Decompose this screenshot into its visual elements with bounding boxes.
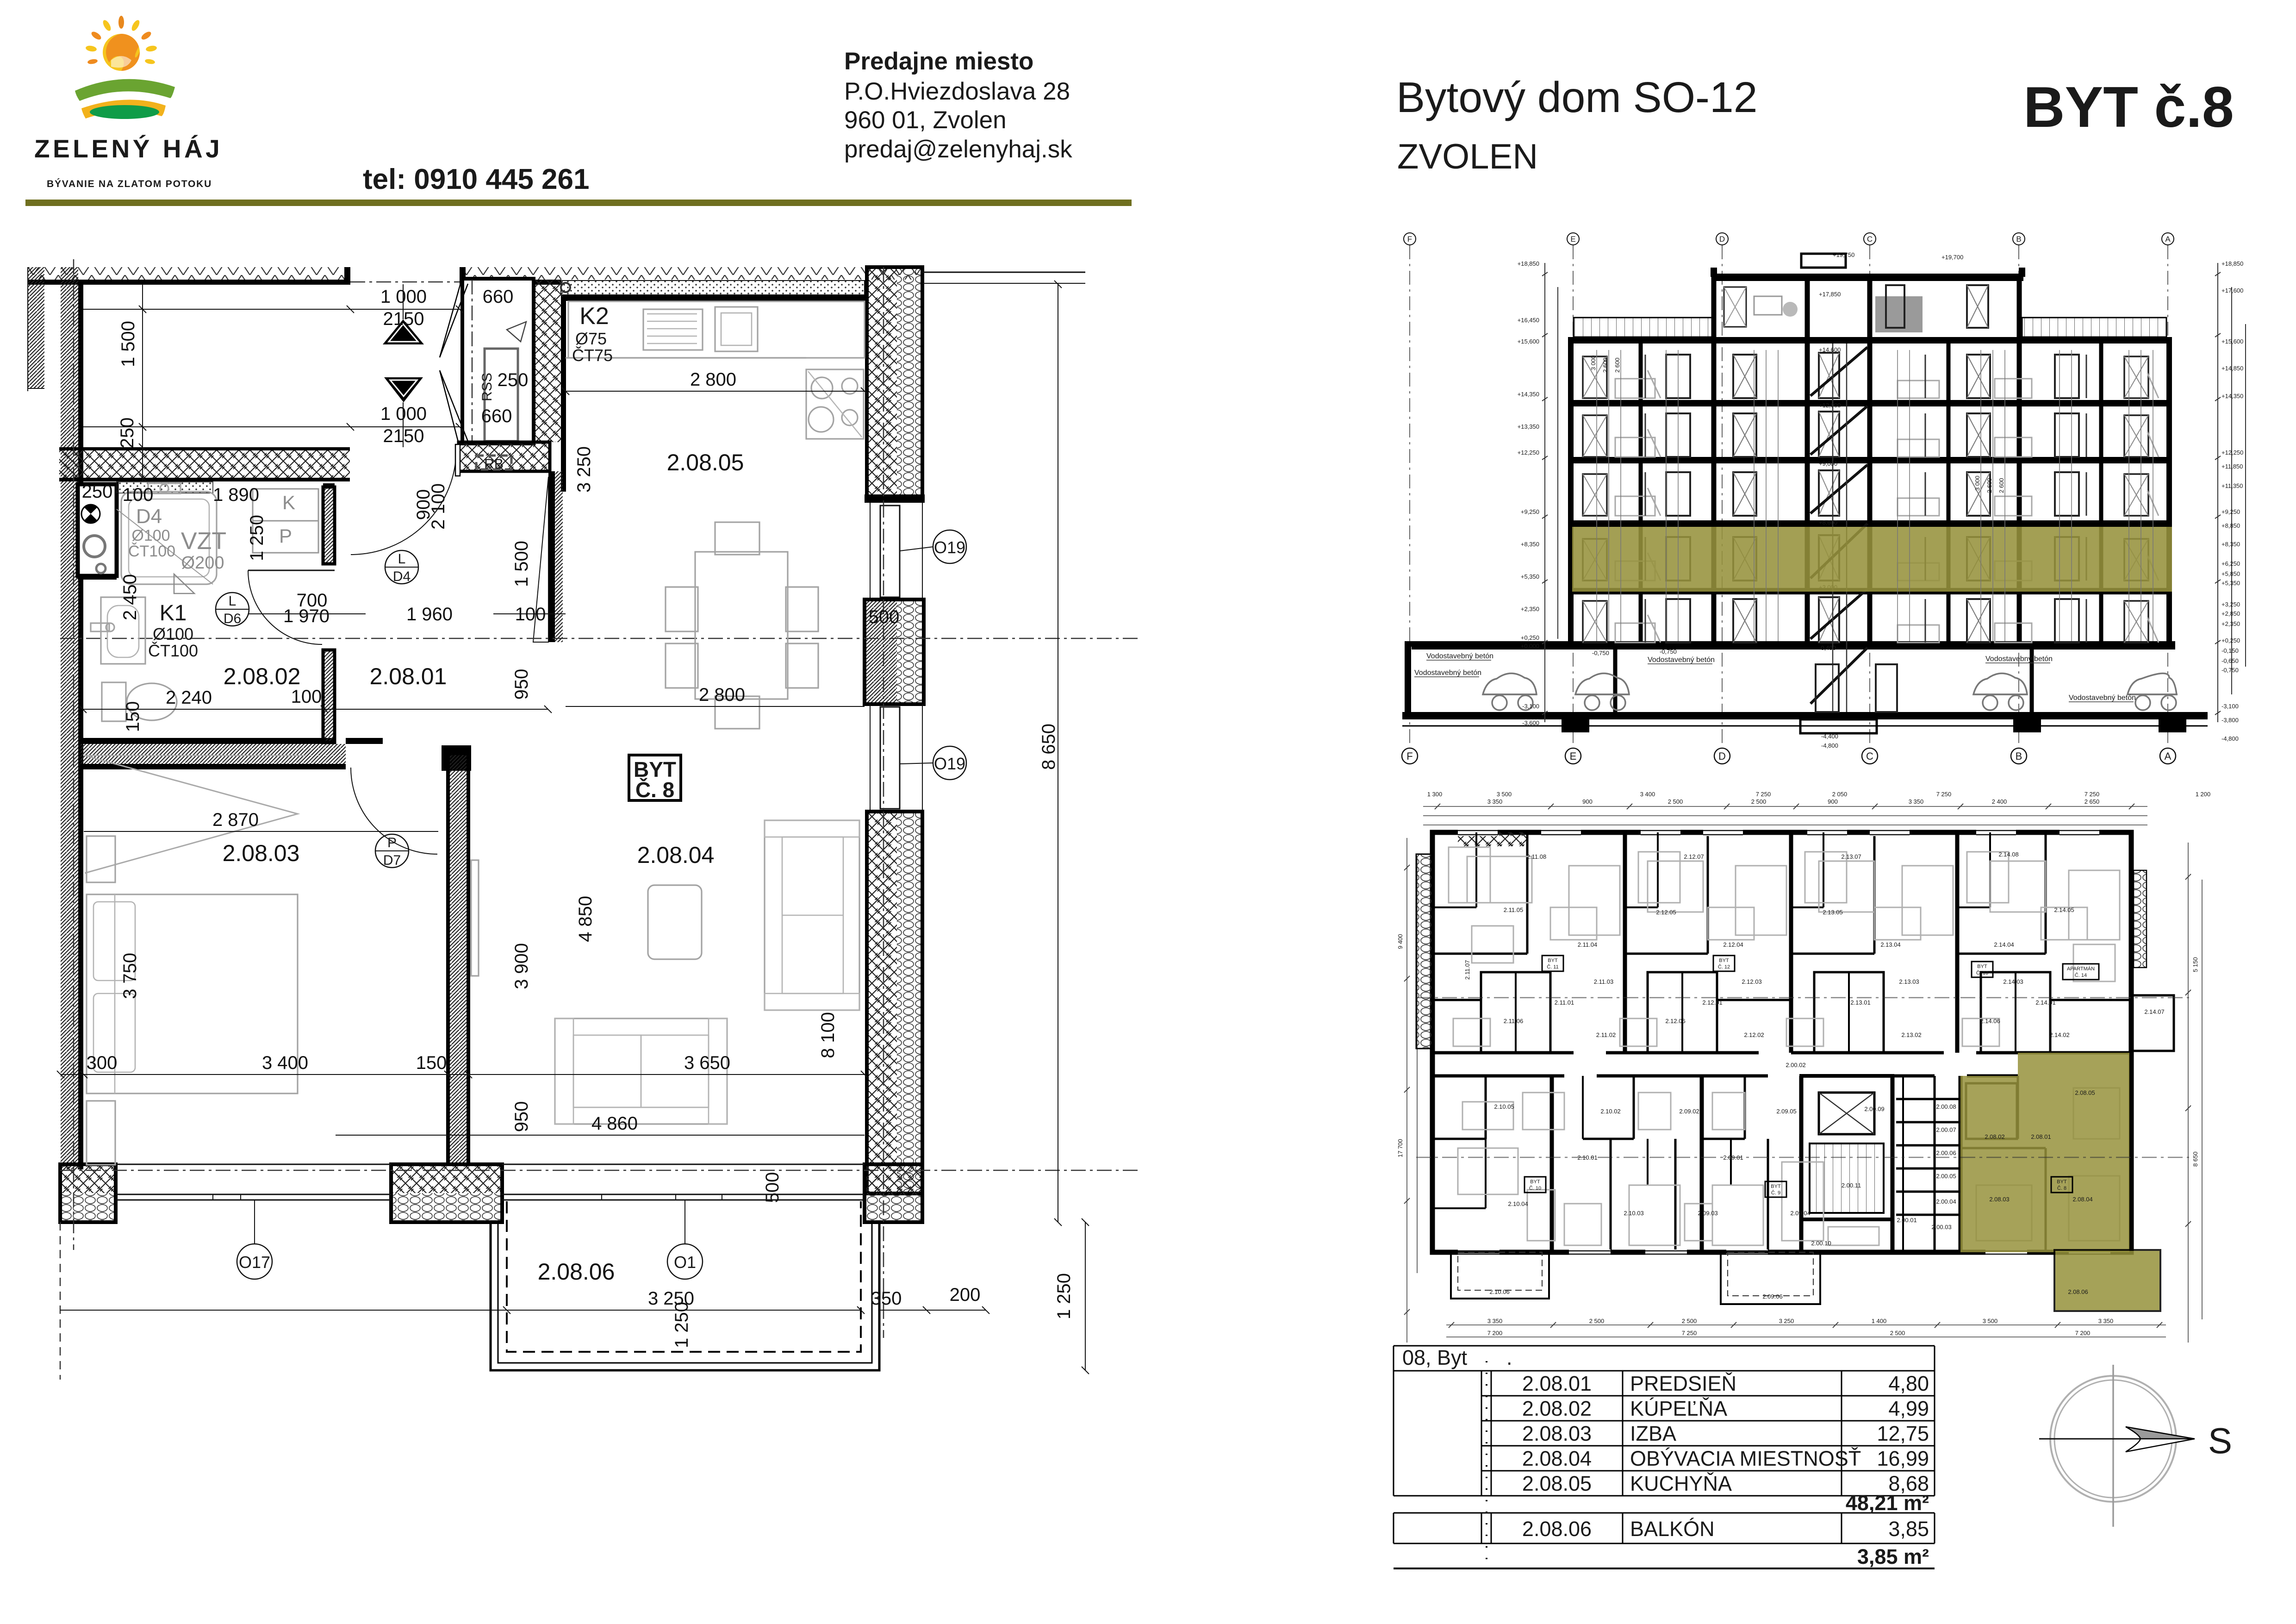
- svg-text:KÚPEĽŇA: KÚPEĽŇA: [1630, 1397, 1727, 1420]
- svg-text:+11,850: +11,850: [2221, 463, 2243, 470]
- svg-text:7 200: 7 200: [1487, 1330, 1503, 1337]
- svg-text:Č. 8: Č. 8: [2057, 1185, 2066, 1191]
- svg-text:2 600: 2 600: [1986, 478, 1993, 493]
- svg-text:2.00.01: 2.00.01: [1897, 1217, 1916, 1224]
- svg-text:+11,350: +11,350: [2221, 482, 2243, 489]
- svg-text:D4: D4: [393, 569, 411, 584]
- svg-text:2 600: 2 600: [1998, 478, 2005, 493]
- svg-text:2 500: 2 500: [1589, 1318, 1605, 1324]
- svg-text:2.08.04: 2.08.04: [637, 842, 715, 868]
- svg-text:1 970: 1 970: [283, 606, 330, 626]
- svg-text:3,85 m²: 3,85 m²: [1857, 1545, 1929, 1568]
- svg-text:+0,250: +0,250: [2221, 637, 2240, 644]
- svg-text:2.00.11: 2.00.11: [1842, 1182, 1861, 1189]
- svg-text:500: 500: [869, 607, 900, 627]
- svg-text:2.09.06: 2.09.06: [1762, 1293, 1782, 1300]
- svg-text:BYT: BYT: [1719, 958, 1729, 963]
- svg-text:2.09.05: 2.09.05: [1776, 1108, 1796, 1115]
- svg-text:2.14.03: 2.14.03: [2003, 978, 2023, 985]
- svg-text:2.10.02: 2.10.02: [1600, 1108, 1620, 1115]
- svg-text:Ø200: Ø200: [181, 553, 224, 573]
- svg-text:660: 660: [483, 287, 514, 307]
- svg-text:2.13.01: 2.13.01: [1850, 999, 1870, 1006]
- svg-text:2.12.04: 2.12.04: [1723, 941, 1743, 948]
- svg-text:2 100: 2 100: [428, 483, 448, 530]
- svg-text:+8,600: +8,600: [1819, 519, 1837, 526]
- svg-text:+14,350: +14,350: [2221, 393, 2243, 400]
- svg-text:+0,000: +0,000: [1521, 643, 1539, 650]
- svg-text:5 150: 5 150: [2192, 957, 2199, 972]
- svg-text:OBÝVACIA MIESTNOSŤ: OBÝVACIA MIESTNOSŤ: [1630, 1447, 1861, 1470]
- svg-text:3 350: 3 350: [1909, 798, 1924, 805]
- svg-text:Vodostavebný betón: Vodostavebný betón: [1648, 656, 1715, 664]
- svg-text:+18,850: +18,850: [2221, 260, 2243, 267]
- svg-text:2.00.06: 2.00.06: [1936, 1149, 1956, 1156]
- svg-text:2.00.03: 2.00.03: [1931, 1224, 1951, 1230]
- svg-text:3 650: 3 650: [684, 1053, 730, 1073]
- svg-text:7 250: 7 250: [1682, 1330, 1697, 1337]
- svg-text:4 850: 4 850: [575, 896, 596, 942]
- svg-text:IZBA: IZBA: [1630, 1422, 1676, 1445]
- svg-text:+12,000: +12,000: [1819, 402, 1841, 409]
- svg-text:4,80: 4,80: [1888, 1372, 1929, 1395]
- svg-text:D7: D7: [383, 853, 401, 868]
- svg-text:Č. 10: Č. 10: [1529, 1185, 1541, 1191]
- svg-text:2 500: 2 500: [1751, 798, 1767, 805]
- svg-text:F: F: [1406, 750, 1412, 762]
- svg-text:500: 500: [762, 1172, 783, 1203]
- svg-text:Č. 11: Č. 11: [1547, 964, 1558, 970]
- svg-text:350: 350: [871, 1288, 902, 1309]
- svg-text:RB: RB: [484, 456, 504, 472]
- svg-text:Č. 14: Č. 14: [2075, 972, 2087, 978]
- svg-text:O17: O17: [239, 1253, 270, 1272]
- svg-text:3 250: 3 250: [1779, 1318, 1794, 1324]
- svg-text:900: 900: [1582, 798, 1593, 805]
- svg-text:predaj@zelenyhaj.sk: predaj@zelenyhaj.sk: [844, 136, 1072, 163]
- svg-text:1 960: 1 960: [406, 604, 453, 625]
- svg-text:L: L: [229, 593, 236, 609]
- svg-text:2.08.05: 2.08.05: [2075, 1089, 2095, 1096]
- svg-text:1 500: 1 500: [118, 321, 138, 367]
- svg-text:2.08.04: 2.08.04: [1522, 1447, 1592, 1470]
- svg-text:2 600: 2 600: [1602, 357, 1609, 373]
- svg-text:S: S: [2208, 1420, 2232, 1461]
- svg-text:+8,350: +8,350: [2221, 541, 2240, 548]
- svg-text:Vodostavebný betón: Vodostavebný betón: [1426, 652, 1493, 660]
- svg-text:2 500: 2 500: [1890, 1330, 1905, 1337]
- svg-text:A: A: [2165, 235, 2171, 244]
- svg-text:4 860: 4 860: [591, 1113, 638, 1134]
- svg-text:+15,600: +15,600: [1518, 338, 1539, 345]
- svg-text:1 250: 1 250: [1054, 1273, 1074, 1319]
- svg-text:2.09.04: 2.09.04: [1790, 1210, 1810, 1217]
- svg-text:K2: K2: [579, 303, 609, 330]
- svg-text:2.00.04: 2.00.04: [1936, 1198, 1956, 1205]
- svg-text:A: A: [2165, 750, 2172, 762]
- svg-text:ZELENÝ HÁJ: ZELENÝ HÁJ: [34, 134, 223, 163]
- svg-text:2 050: 2 050: [1832, 791, 1848, 798]
- svg-text:3 500: 3 500: [1983, 1318, 1998, 1324]
- svg-text:BALKÓN: BALKÓN: [1630, 1517, 1715, 1541]
- svg-text:F: F: [1407, 235, 1412, 244]
- svg-text:250: 250: [498, 370, 529, 390]
- svg-text:2.13.05: 2.13.05: [1823, 909, 1842, 916]
- svg-text:2.11.07: 2.11.07: [1464, 960, 1471, 980]
- svg-text:Ø100: Ø100: [153, 625, 193, 643]
- svg-text:Vodostavebný betón: Vodostavebný betón: [1985, 655, 2053, 663]
- svg-text:BÝVANIE NA ZLATOM POTOKU: BÝVANIE NA ZLATOM POTOKU: [47, 178, 212, 189]
- svg-text:2.12.03: 2.12.03: [1742, 978, 1761, 985]
- svg-text:2 500: 2 500: [1668, 798, 1683, 805]
- svg-text:2150: 2150: [383, 309, 424, 329]
- svg-text:ČT100: ČT100: [148, 641, 198, 660]
- svg-text:2.08.06: 2.08.06: [538, 1259, 615, 1285]
- svg-text:Č. 8: Č. 8: [635, 778, 674, 802]
- svg-text:P: P: [387, 835, 397, 850]
- svg-text:2.08.02: 2.08.02: [1522, 1397, 1592, 1420]
- svg-text:1 000: 1 000: [380, 404, 427, 424]
- svg-text:ČT100: ČT100: [128, 543, 175, 560]
- svg-text:2 800: 2 800: [690, 369, 736, 390]
- svg-text:L: L: [398, 551, 406, 567]
- svg-text:2.14.08: 2.14.08: [1998, 851, 2018, 858]
- svg-text:+19,700: +19,700: [1941, 254, 1963, 261]
- svg-text:+15,600: +15,600: [2221, 338, 2243, 345]
- svg-text:E: E: [1570, 750, 1577, 762]
- svg-text:2.10.03: 2.10.03: [1624, 1210, 1643, 1217]
- svg-text:3 000: 3 000: [1590, 355, 1597, 370]
- svg-text:2.14.05: 2.14.05: [2054, 906, 2074, 913]
- svg-text:3 500: 3 500: [1497, 791, 1512, 798]
- svg-text:150: 150: [123, 701, 143, 732]
- svg-text:3 000: 3 000: [1974, 475, 1981, 491]
- svg-text:C: C: [1867, 235, 1873, 244]
- svg-text:+12,250: +12,250: [1518, 449, 1539, 456]
- svg-text:Bytový dom SO-12: Bytový dom SO-12: [1396, 73, 1757, 121]
- svg-text:2.13.03: 2.13.03: [1899, 978, 1919, 985]
- svg-text:2 500: 2 500: [1682, 1318, 1697, 1324]
- svg-text:2 400: 2 400: [1992, 798, 2007, 805]
- svg-text:2.08.01: 2.08.01: [2031, 1133, 2051, 1140]
- svg-text:D6: D6: [224, 611, 241, 626]
- svg-text:PREDSIEŇ: PREDSIEŇ: [1630, 1372, 1736, 1395]
- svg-text:Č. 9: Č. 9: [1771, 1190, 1780, 1196]
- svg-text:2.14.02: 2.14.02: [2049, 1031, 2069, 1038]
- svg-text:2.10.06: 2.10.06: [1489, 1288, 1509, 1295]
- svg-text:2.12.01: 2.12.01: [1702, 999, 1722, 1006]
- svg-text:O19: O19: [934, 538, 965, 557]
- svg-text:2 600: 2 600: [1614, 357, 1621, 373]
- svg-text:+5,350: +5,350: [2221, 580, 2240, 587]
- svg-text:+18,850: +18,850: [1518, 260, 1539, 267]
- svg-text:+19,750: +19,750: [1833, 251, 1854, 258]
- svg-text:Ø75: Ø75: [575, 329, 607, 348]
- svg-text:E: E: [1570, 235, 1575, 244]
- svg-text:Vodostavebný betón: Vodostavebný betón: [2069, 694, 2136, 702]
- svg-text:B: B: [2016, 750, 2022, 762]
- svg-text:7 250: 7 250: [1936, 791, 1952, 798]
- svg-text:C: C: [1866, 750, 1873, 762]
- svg-text:2.13.04: 2.13.04: [1880, 941, 1900, 948]
- svg-text:-0,750: -0,750: [2221, 667, 2239, 674]
- svg-text:+8,850: +8,850: [2221, 522, 2240, 529]
- svg-text:2.12.05: 2.12.05: [1656, 909, 1676, 916]
- svg-text:D4: D4: [136, 505, 162, 528]
- svg-text:3 350: 3 350: [1487, 798, 1503, 805]
- svg-text:2.13.02: 2.13.02: [1901, 1031, 1921, 1038]
- svg-text:2.08.01: 2.08.01: [1522, 1372, 1592, 1395]
- svg-text:O19: O19: [934, 754, 965, 773]
- svg-text:100: 100: [123, 485, 154, 505]
- svg-text:150: 150: [416, 1053, 447, 1073]
- svg-text:ČT75: ČT75: [572, 346, 613, 365]
- svg-text:2.08.05: 2.08.05: [1522, 1472, 1592, 1495]
- svg-text:+16,450: +16,450: [1518, 317, 1539, 324]
- svg-text:Č. 13: Č. 13: [1976, 970, 1988, 976]
- svg-text:2.08.03: 2.08.03: [1989, 1196, 2009, 1203]
- svg-text:+17,850: +17,850: [1819, 291, 1841, 298]
- svg-text:2.10.05: 2.10.05: [1494, 1103, 1514, 1110]
- svg-text:2.14.06: 2.14.06: [1980, 1018, 2000, 1024]
- svg-text:BYT: BYT: [1977, 964, 1987, 969]
- svg-text:2 650: 2 650: [2084, 798, 2100, 805]
- svg-text:-0,650: -0,650: [2221, 657, 2239, 664]
- svg-text:8 650: 8 650: [2192, 1151, 2199, 1167]
- svg-text:3 400: 3 400: [262, 1053, 308, 1073]
- svg-text:+2,350: +2,350: [1521, 606, 1539, 612]
- svg-text:D: D: [1719, 235, 1725, 244]
- svg-text:2.00.09: 2.00.09: [1864, 1106, 1884, 1112]
- svg-text:-4,400: -4,400: [1821, 733, 1838, 740]
- svg-text:+9,250: +9,250: [2221, 508, 2240, 515]
- svg-text:+14,600: +14,600: [1819, 346, 1841, 353]
- svg-text:3 750: 3 750: [120, 953, 140, 999]
- svg-text:8 100: 8 100: [818, 1012, 838, 1058]
- svg-text:+6,250: +6,250: [2221, 560, 2240, 567]
- svg-text:+8,350: +8,350: [1521, 541, 1539, 548]
- svg-text:APARTMÁN: APARTMÁN: [2067, 966, 2095, 972]
- svg-text:+17,600: +17,600: [2221, 287, 2243, 294]
- svg-text:2.12.07: 2.12.07: [1684, 853, 1704, 860]
- svg-text:48,21 m²: 48,21 m²: [1846, 1491, 1929, 1515]
- svg-text:2.11.04: 2.11.04: [1578, 941, 1597, 948]
- svg-text:3 350: 3 350: [1487, 1318, 1503, 1324]
- svg-text:1 400: 1 400: [1872, 1318, 1887, 1324]
- svg-text:Ø100: Ø100: [131, 527, 170, 544]
- svg-text:9 400: 9 400: [1397, 934, 1404, 949]
- svg-text:+3,250: +3,250: [2221, 601, 2240, 608]
- svg-text:-3,600: -3,600: [1522, 719, 1539, 726]
- svg-text:7 250: 7 250: [1756, 791, 1771, 798]
- svg-text:2.08.01: 2.08.01: [370, 663, 447, 689]
- svg-text:O1: O1: [674, 1253, 696, 1272]
- svg-text:2.14.04: 2.14.04: [1994, 941, 2014, 948]
- svg-text:7 200: 7 200: [2075, 1330, 2091, 1337]
- svg-text:960 01, Zvolen: 960 01, Zvolen: [844, 106, 1007, 134]
- svg-text:8 650: 8 650: [1039, 724, 1059, 770]
- svg-text:2.09.02: 2.09.02: [1679, 1108, 1699, 1115]
- svg-text:B: B: [2016, 235, 2021, 244]
- svg-text:KUCHYŇA: KUCHYŇA: [1630, 1472, 1732, 1495]
- svg-text:+2,850: +2,850: [2221, 610, 2240, 617]
- svg-text:2 800: 2 800: [699, 685, 745, 705]
- svg-text:2.11.06: 2.11.06: [1504, 1018, 1523, 1024]
- svg-text:660: 660: [481, 406, 512, 426]
- svg-text:BYT: BYT: [1548, 958, 1558, 963]
- svg-text:2.11.03: 2.11.03: [1594, 978, 1613, 985]
- svg-text:-4,800: -4,800: [1821, 742, 1838, 749]
- svg-text:16,99: 16,99: [1877, 1447, 1929, 1470]
- svg-text:3 250: 3 250: [574, 446, 594, 493]
- svg-text:-3,100: -3,100: [1522, 703, 1539, 710]
- svg-text:2.11.02: 2.11.02: [1596, 1031, 1616, 1038]
- svg-text:2.08.03: 2.08.03: [1522, 1422, 1592, 1445]
- svg-text:900: 900: [1828, 798, 1838, 805]
- svg-text:P: P: [279, 525, 292, 547]
- svg-text:1 000: 1 000: [380, 287, 427, 307]
- svg-text:VZT: VZT: [181, 528, 226, 555]
- svg-text:K: K: [282, 492, 295, 513]
- svg-text:BYT č.8: BYT č.8: [2023, 75, 2234, 139]
- svg-text:3 400: 3 400: [1640, 791, 1655, 798]
- svg-text:2.00.10: 2.00.10: [1811, 1240, 1831, 1247]
- svg-text:2.08.06: 2.08.06: [1522, 1517, 1592, 1541]
- svg-text:2.08.03: 2.08.03: [223, 840, 300, 866]
- svg-text:2150: 2150: [383, 426, 424, 446]
- svg-text:2.10.04: 2.10.04: [1508, 1200, 1528, 1207]
- svg-text:2.00.05: 2.00.05: [1936, 1173, 1956, 1180]
- svg-text:ZVOLEN: ZVOLEN: [1397, 137, 1538, 176]
- svg-text:Predajne miesto: Predajne miesto: [844, 48, 1033, 75]
- svg-text:-0,400: -0,400: [1819, 644, 1836, 651]
- svg-text:3,85: 3,85: [1888, 1517, 1929, 1541]
- svg-text:12,75: 12,75: [1877, 1422, 1929, 1445]
- svg-text:-3,800: -3,800: [2221, 717, 2239, 724]
- svg-text:2.08.04: 2.08.04: [2072, 1196, 2092, 1203]
- svg-text:+14,850: +14,850: [2221, 365, 2243, 372]
- svg-text:P.O.Hviezdoslava 28: P.O.Hviezdoslava 28: [844, 78, 1070, 105]
- svg-text:-3,100: -3,100: [2221, 703, 2239, 710]
- svg-text:3 350: 3 350: [2098, 1318, 2114, 1324]
- svg-text:2.13.07: 2.13.07: [1841, 853, 1861, 860]
- svg-text:+0,250: +0,250: [1521, 634, 1539, 641]
- svg-text:2.08.02: 2.08.02: [1985, 1133, 2004, 1140]
- svg-text:K1: K1: [160, 601, 187, 625]
- svg-text:1 250: 1 250: [672, 1302, 692, 1348]
- svg-text:2 870: 2 870: [212, 810, 259, 830]
- svg-text:-0,150: -0,150: [2221, 647, 2239, 654]
- svg-text:2.12.06: 2.12.06: [1665, 1018, 1685, 1024]
- svg-text:BYT: BYT: [1771, 1184, 1781, 1189]
- svg-text:1 500: 1 500: [511, 541, 532, 587]
- svg-text:250: 250: [117, 418, 137, 449]
- svg-text:.: .: [1506, 1346, 1512, 1369]
- svg-text:2.09.03: 2.09.03: [1698, 1210, 1717, 1217]
- svg-text:2.11.08: 2.11.08: [1527, 853, 1546, 860]
- svg-text:300: 300: [87, 1053, 118, 1073]
- svg-text:2.00.08: 2.00.08: [1936, 1103, 1956, 1110]
- svg-text:+13,350: +13,350: [1518, 423, 1539, 430]
- svg-text:+14,350: +14,350: [1518, 391, 1539, 398]
- svg-text:+12,250: +12,250: [2221, 449, 2243, 456]
- svg-text:1 200: 1 200: [2196, 791, 2211, 798]
- svg-text:3 900: 3 900: [511, 943, 532, 989]
- svg-text:BYT: BYT: [1530, 1179, 1540, 1185]
- svg-text:Č. 12: Č. 12: [1718, 964, 1730, 970]
- svg-text:250: 250: [82, 481, 113, 502]
- svg-text:RSS: RSS: [479, 373, 495, 401]
- svg-text:950: 950: [511, 1101, 532, 1132]
- svg-text:1 250: 1 250: [247, 515, 267, 561]
- svg-text:2.00.07: 2.00.07: [1936, 1126, 1956, 1133]
- svg-text:7 250: 7 250: [2084, 791, 2100, 798]
- svg-text:2.08.06: 2.08.06: [2068, 1288, 2088, 1295]
- svg-text:2.08.02: 2.08.02: [224, 663, 301, 689]
- svg-text:4,99: 4,99: [1888, 1397, 1929, 1420]
- svg-text:+9,250: +9,250: [1521, 508, 1539, 515]
- svg-text:100: 100: [291, 687, 322, 707]
- svg-text:2.12.02: 2.12.02: [1744, 1031, 1764, 1038]
- svg-text:2.08.05: 2.08.05: [667, 450, 744, 475]
- svg-text:08, Byt: 08, Byt: [1402, 1346, 1468, 1369]
- svg-text:-0,750: -0,750: [1660, 648, 1677, 655]
- svg-text:17 700: 17 700: [1397, 1139, 1404, 1157]
- svg-text:+5,850: +5,850: [2221, 570, 2240, 577]
- svg-text:1 300: 1 300: [1427, 791, 1443, 798]
- svg-text:D: D: [1718, 750, 1726, 762]
- svg-text:2 240: 2 240: [166, 687, 212, 708]
- svg-text:1 890: 1 890: [213, 485, 259, 505]
- svg-text:2.00.02: 2.00.02: [1786, 1062, 1805, 1068]
- svg-text:2.11.05: 2.11.05: [1504, 906, 1523, 913]
- svg-text:+9,000: +9,000: [1819, 460, 1837, 467]
- svg-text:+5,350: +5,350: [1521, 573, 1539, 580]
- svg-text:tel: 0910 445 261: tel: 0910 445 261: [363, 163, 590, 195]
- svg-text:BYT: BYT: [2057, 1179, 2067, 1185]
- svg-text:950: 950: [511, 669, 532, 700]
- svg-text:+2,350: +2,350: [2221, 620, 2240, 627]
- svg-text:-4,800: -4,800: [2221, 735, 2239, 742]
- svg-text:2.14.07: 2.14.07: [2144, 1008, 2164, 1015]
- svg-text:2.11.01: 2.11.01: [1555, 999, 1574, 1006]
- svg-text:Vodostavebný betón: Vodostavebný betón: [1414, 669, 1481, 677]
- svg-text:2.14.01: 2.14.01: [2035, 999, 2055, 1006]
- svg-text:-0,750: -0,750: [1592, 650, 1609, 656]
- svg-text:2 450: 2 450: [120, 574, 140, 620]
- svg-text:200: 200: [950, 1285, 981, 1305]
